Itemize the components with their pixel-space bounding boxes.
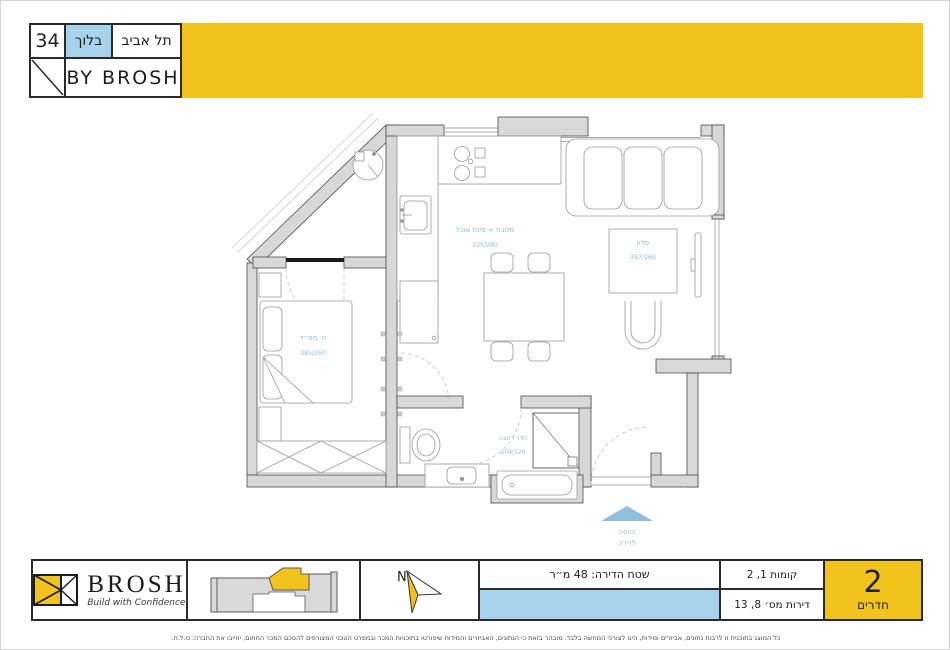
entrance-label-2: לדירה bbox=[618, 539, 636, 547]
bedroom-dims: 385/260 bbox=[300, 350, 326, 357]
kitchen-label: מטבח + פינת אוכל bbox=[456, 226, 514, 234]
apartment-area-text: שטח הדירה: 48 מ״ר bbox=[480, 561, 719, 590]
floor-plan-drawing: מטבח + פינת אוכל 325/280 סלון 397/260 ח.… bbox=[229, 109, 741, 561]
kitchen-dims: 325/280 bbox=[472, 242, 498, 249]
area-cell: שטח הדירה: 48 מ״ר bbox=[480, 561, 721, 619]
plan-sheet: 34 בלוך תל אביב BY BROSH bbox=[0, 0, 950, 650]
header-accent-band bbox=[182, 23, 923, 98]
rooms-label: חדרים bbox=[857, 598, 889, 612]
brand-name: BROSH bbox=[87, 572, 185, 597]
area-blue-band bbox=[480, 590, 719, 619]
brand-tagline: Build with Confidence bbox=[87, 599, 185, 608]
living-label: סלון bbox=[637, 239, 650, 247]
entrance-label-1: כניסה bbox=[619, 528, 636, 536]
city-name: תל אביב bbox=[113, 25, 180, 59]
dining-table-and-chairs bbox=[484, 253, 564, 361]
block-name: בלוך bbox=[66, 25, 113, 59]
footer-strip: BROSH Build with Confidence N שטח הדירה:… bbox=[31, 559, 923, 621]
legal-disclaimer: כל המוצג בתוכנית זו לרבות נתונים, אביזרי… bbox=[1, 634, 950, 642]
bathroom-dims: 204/120 bbox=[501, 449, 526, 456]
keyplan-cell bbox=[188, 561, 361, 619]
brosh-logo-icon bbox=[33, 573, 79, 607]
floors-cell: קומות 1, 2 דירות מס׳ 8, 13 bbox=[721, 561, 825, 619]
roof-overhang-lines bbox=[232, 113, 378, 253]
bedroom-label: ח. ממ״ד bbox=[300, 334, 327, 342]
rooms-count-cell: 2 חדרים bbox=[825, 561, 921, 619]
bedroom-furniture bbox=[257, 273, 386, 473]
north-arrow-cell: N bbox=[361, 561, 480, 619]
title-block: 34 בלוך תל אביב BY BROSH bbox=[29, 23, 182, 98]
street-number: 34 bbox=[31, 25, 66, 59]
north-label: N bbox=[397, 570, 407, 585]
apartments-text: דירות מס׳ 8, 13 bbox=[721, 590, 823, 619]
by-brosh-label: BY BROSH bbox=[66, 59, 180, 96]
logo-slash-icon bbox=[31, 59, 66, 96]
floors-text: קומות 1, 2 bbox=[721, 561, 823, 590]
rooms-count: 2 bbox=[863, 568, 882, 598]
entrance-arrow-icon bbox=[601, 506, 653, 521]
bathroom-label: חדר רחצה bbox=[499, 435, 527, 442]
living-dims: 397/260 bbox=[630, 254, 656, 261]
building-keyplan-icon bbox=[209, 564, 339, 616]
brand-cell: BROSH Build with Confidence bbox=[33, 561, 188, 619]
entrance-marker: כניסה לדירה bbox=[601, 506, 653, 547]
north-arrow-icon: N bbox=[389, 564, 451, 616]
